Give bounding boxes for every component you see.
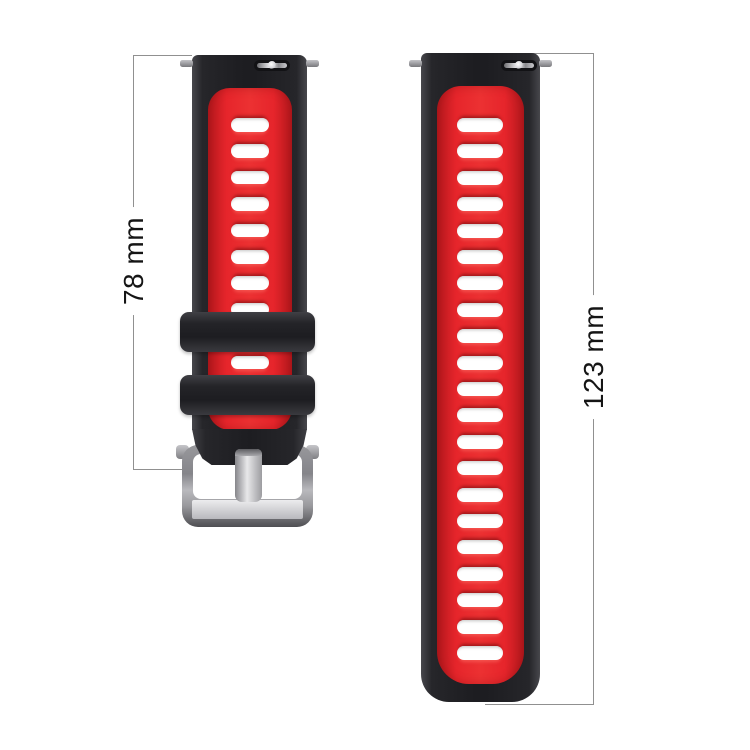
strap-slot <box>457 593 503 607</box>
dimension-label-123mm: 123 mm <box>578 295 610 419</box>
strap-slot <box>231 224 269 238</box>
strap-keeper-upper <box>180 312 315 352</box>
spring-bar-icon <box>254 60 290 71</box>
strap-slot <box>457 514 503 528</box>
strap-slot <box>457 620 503 634</box>
strap-slot <box>457 329 503 343</box>
spring-bar-pin-right-icon <box>306 60 319 67</box>
strap-slot <box>457 276 503 290</box>
strap-slot <box>231 250 269 264</box>
strap-slot <box>231 118 269 132</box>
strap-slot <box>457 646 503 660</box>
strap-slot <box>231 171 269 185</box>
strap-slot <box>231 144 269 158</box>
strap-slot <box>457 356 503 370</box>
strap-slot <box>231 197 269 211</box>
strap-slot <box>457 118 503 132</box>
strap-slot <box>457 567 503 581</box>
strap-slot <box>457 408 503 422</box>
strap-long-red-insert <box>437 86 524 684</box>
strap-slot <box>457 488 503 502</box>
dimension-tick-bottom <box>485 704 593 705</box>
strap-slot <box>457 224 503 238</box>
dimension-tick-top <box>133 55 192 56</box>
dimension-label-78mm: 78 mm <box>118 207 150 315</box>
spring-bar-glint <box>268 61 276 69</box>
strap-slot <box>457 303 503 317</box>
strap-slot <box>457 197 503 211</box>
strap-slot <box>457 540 503 554</box>
buckle-tang <box>235 449 262 502</box>
strap-slot <box>457 171 503 185</box>
strap-slot <box>231 276 269 290</box>
strap-slot <box>457 250 503 264</box>
strap-keeper-lower <box>180 375 315 415</box>
strap-slot <box>231 356 269 370</box>
strap-slot <box>457 461 503 475</box>
strap-slot <box>457 144 503 158</box>
spring-bar-pin-left-icon <box>180 60 193 67</box>
spring-bar-pin-right-icon <box>539 60 552 67</box>
spring-bar-glint <box>515 61 523 69</box>
strap-slot <box>457 435 503 449</box>
product-figure: 78 mm 123 mm <box>0 0 750 750</box>
spring-bar-pin-left-icon <box>409 60 422 67</box>
spring-bar-icon <box>501 60 537 71</box>
strap-slot <box>457 382 503 396</box>
buckle-bottom-bar <box>192 500 303 519</box>
